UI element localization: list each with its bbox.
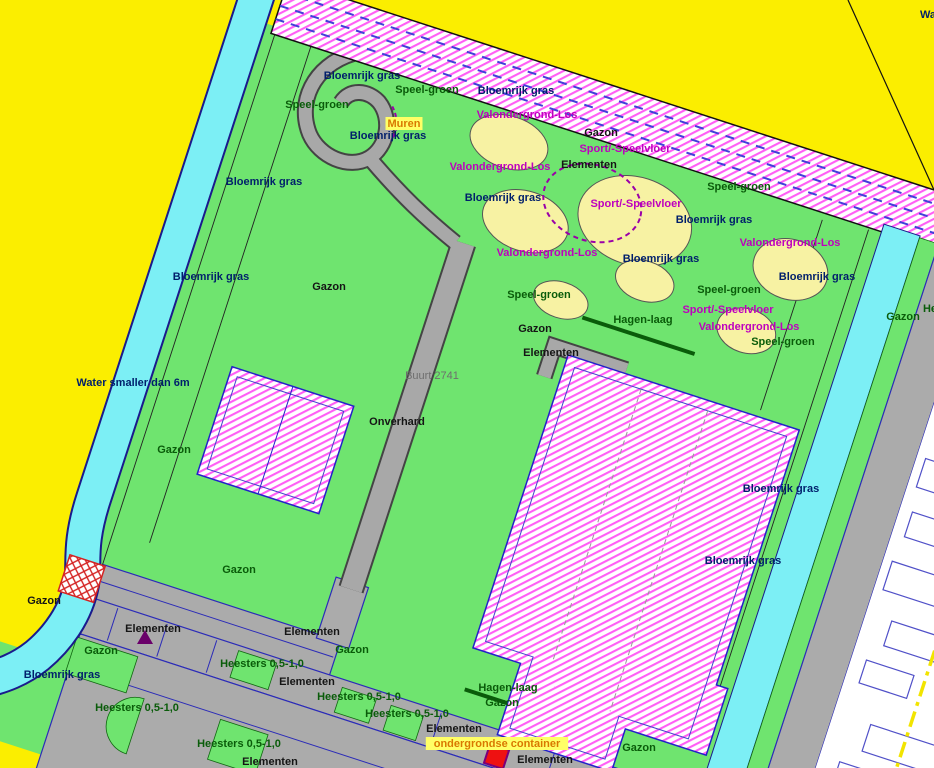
map-label: Sport/-Speelvloer — [579, 143, 671, 155]
map-label: Elementen — [523, 347, 579, 359]
map-label: Valondergrond-Los — [740, 237, 841, 249]
map-label: Hagen-laag — [613, 314, 672, 326]
map-viewport[interactable]: Bloemrijk grasSpeel-groenBloemrijk grasS… — [0, 0, 934, 768]
map-label: Gazon — [312, 281, 346, 293]
map-label: Gazon — [886, 311, 920, 323]
map-label: Valondergrond-Los — [497, 247, 598, 259]
map-label: Buurt 2741 — [405, 370, 459, 382]
map-label: Bloemrijk gras — [705, 555, 781, 567]
map-label: Bloemrijk gras — [743, 483, 819, 495]
map-label: Heesters 0,5-1,0 — [220, 658, 304, 670]
map-label: Bloemrijk gras — [676, 214, 752, 226]
map-label: Hagen-laag — [478, 682, 537, 694]
map-label: Wa — [920, 9, 934, 21]
map-label: Gazon — [584, 127, 618, 139]
map-label: Heesters 0,5-1,0 — [197, 738, 281, 750]
map-label: Bloemrijk gras — [324, 70, 400, 82]
map-label: Sport/-Speelvloer — [590, 198, 682, 210]
map-label: Heesters 0,5-1,0 — [317, 691, 401, 703]
map-label: Elementen — [561, 159, 617, 171]
map-label: Heesters 0,5-1,0 — [95, 702, 179, 714]
map-label: Valondergrond-Los — [699, 321, 800, 333]
map-label: Speel-groen — [395, 84, 459, 96]
map-label: Gazon — [27, 595, 61, 607]
map-label: Elementen — [125, 623, 181, 635]
map-label: Elementen — [242, 756, 298, 768]
map-label: Gazon — [622, 742, 656, 754]
map-label: Heesters 0,5-1,0 — [365, 708, 449, 720]
map-label: Elementen — [517, 754, 573, 766]
map-label: He — [923, 303, 934, 315]
map-label: Bloemrijk gras — [478, 85, 554, 97]
map-label: Elementen — [426, 723, 482, 735]
map-label: Elementen — [284, 626, 340, 638]
map-label: Gazon — [335, 644, 369, 656]
map-label: Water smaller dan 6m — [76, 377, 190, 389]
map-label: Bloemrijk gras — [173, 271, 249, 283]
map-label: Muren — [388, 118, 421, 130]
map-label: Bloemrijk gras — [779, 271, 855, 283]
map-label: Valondergrond-Los — [450, 161, 551, 173]
map-label: Speel-groen — [507, 289, 571, 301]
map-label: Onverhard — [369, 416, 425, 428]
map-label: Elementen — [279, 676, 335, 688]
map-label: Gazon — [485, 697, 519, 709]
map-label: Bloemrijk gras — [350, 130, 426, 142]
map-label: Speel-groen — [707, 181, 771, 193]
map-label: Gazon — [222, 564, 256, 576]
map-label: Bloemrijk gras — [465, 192, 541, 204]
map-label: Speel-groen — [751, 336, 815, 348]
map-label: Bloemrijk gras — [24, 669, 100, 681]
map-label: Gazon — [518, 323, 552, 335]
map-label: Bloemrijk gras — [226, 176, 302, 188]
map-label: Gazon — [157, 444, 191, 456]
map-label: Speel-groen — [285, 99, 349, 111]
map-canvas[interactable]: Bloemrijk grasSpeel-groenBloemrijk grasS… — [0, 0, 934, 768]
map-label: Bloemrijk gras — [623, 253, 699, 265]
map-label: Speel-groen — [697, 284, 761, 296]
map-label: Gazon — [84, 645, 118, 657]
map-label: Valondergrond-Los — [477, 109, 578, 121]
map-label: ondergrondse container — [434, 738, 561, 750]
map-label: Sport/-Speelvloer — [682, 304, 774, 316]
